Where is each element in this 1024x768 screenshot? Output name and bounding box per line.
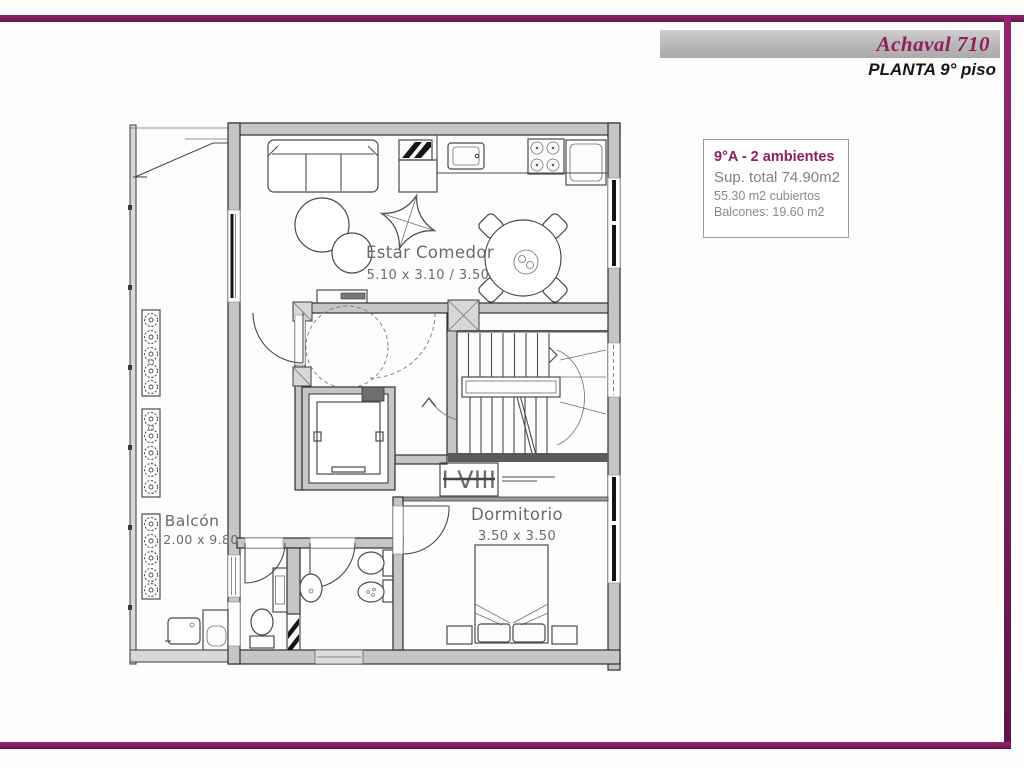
pillow: [513, 624, 545, 642]
frame-right-line: [1004, 15, 1011, 749]
counter-return: [399, 160, 437, 192]
vent-hatch: [399, 140, 432, 160]
floor-subtitle: PLANTA 9° piso: [660, 60, 996, 80]
bedroom-label: Dormitorio: [471, 505, 563, 524]
toilet: [250, 609, 274, 648]
total-area: Sup. total 74.90m2: [714, 169, 838, 186]
floor-plan: I VIII: [125, 110, 685, 672]
elevator: [302, 387, 395, 490]
balcony-area: Balcones: 19.60 m2: [714, 205, 838, 219]
stair-floor-box: I VIII: [440, 463, 555, 496]
stair-treads-lower: [470, 397, 547, 453]
stair-winders: [557, 350, 606, 445]
kitchen: [399, 135, 608, 192]
refrigerator: [566, 140, 606, 185]
bidet: [358, 580, 393, 602]
coffee-tables: [295, 198, 372, 273]
bedroom-dimensions: 3.50 x 3.50: [478, 529, 556, 544]
bed: [475, 545, 548, 643]
sofa: [268, 140, 378, 192]
unit-info-box: 9°A - 2 ambientes Sup. total 74.90m2 55.…: [703, 139, 849, 238]
balcony-dimensions: 2.00 x 9.80: [163, 532, 238, 547]
laundry-tub: [165, 618, 200, 644]
bathroom: [237, 538, 403, 650]
sliding-door: [317, 290, 367, 303]
stair-landing: [462, 377, 560, 397]
direction-arrows: [422, 347, 557, 420]
stove: [528, 139, 564, 174]
planter-flowers: [145, 314, 158, 597]
unit-name: 9°A - 2 ambientes: [714, 149, 838, 165]
laundry-box: [203, 610, 228, 650]
duct-hatch: [287, 614, 300, 650]
living-room-label: Estar Comedor: [366, 243, 494, 262]
awning-lines: [133, 139, 228, 177]
pillow: [478, 624, 510, 642]
covered-area: 55.30 m2 cubiertos: [714, 189, 838, 203]
nightstand-right: [552, 626, 577, 644]
header-bar: Achaval 710: [660, 30, 1000, 58]
kitchen-sink: [448, 143, 484, 169]
page: Achaval 710 PLANTA 9° piso 9°A - 2 ambie…: [0, 0, 1024, 768]
washbasin: [300, 574, 322, 602]
project-title: Achaval 710: [877, 32, 990, 57]
nightstand-left: [447, 626, 472, 644]
kitchen-counter: [437, 135, 608, 173]
bedroom-door-arc: [403, 506, 449, 554]
frame-bottom-line: [0, 742, 1011, 749]
frame-top-line: [0, 15, 1024, 22]
service-core: I VIII: [253, 290, 608, 496]
living-room-dimensions: 5.10 x 3.10 / 3.50: [367, 268, 490, 283]
stair-treads-upper: [469, 333, 550, 377]
balcony: [133, 139, 228, 650]
vanity-counter: [273, 568, 287, 612]
balcony-label: Balcón: [165, 512, 220, 530]
entry-door-arc: [253, 313, 305, 365]
turning-circle: [306, 306, 435, 388]
toilet-2: [358, 550, 393, 576]
dining-table: [485, 220, 561, 296]
